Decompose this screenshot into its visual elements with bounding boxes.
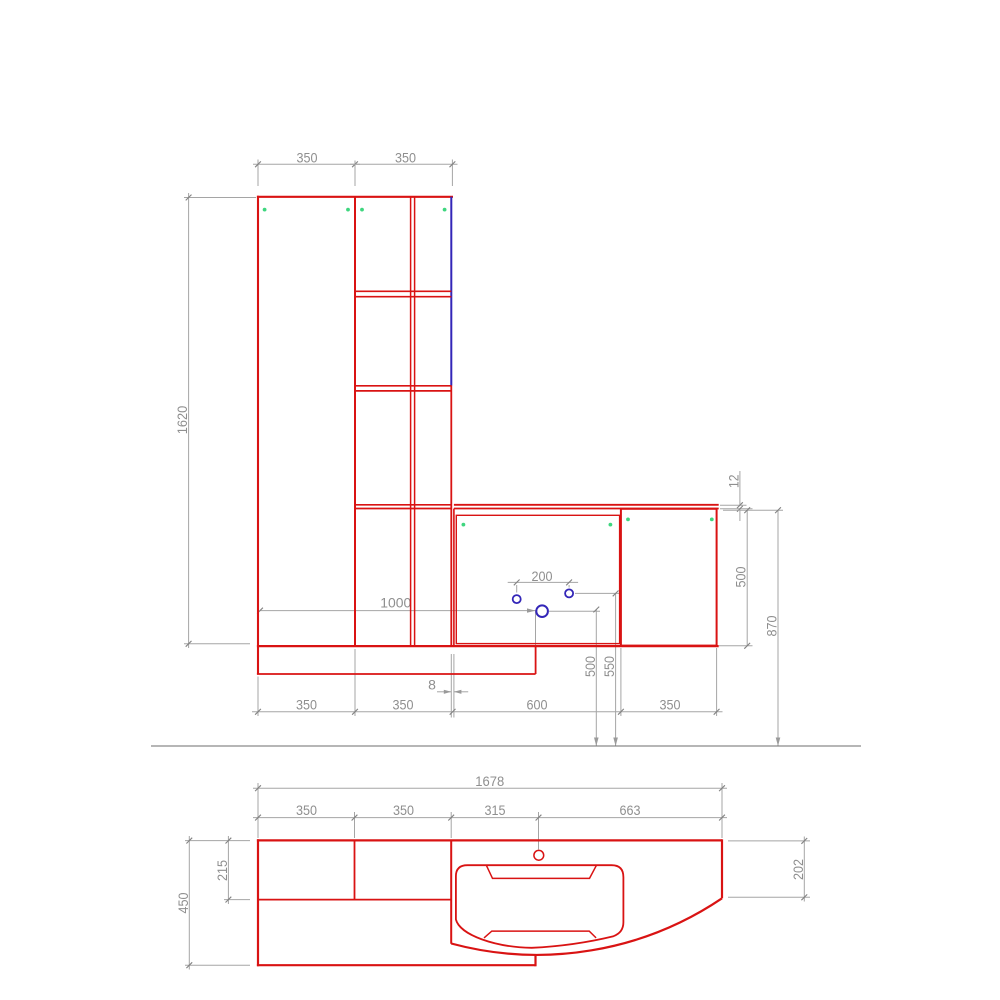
svg-text:350: 350 (393, 696, 414, 712)
svg-text:350: 350 (393, 802, 414, 818)
svg-text:12: 12 (725, 474, 741, 488)
svg-text:1000: 1000 (380, 595, 411, 611)
svg-text:500: 500 (582, 656, 598, 677)
svg-text:8: 8 (428, 676, 436, 692)
svg-text:350: 350 (296, 696, 317, 712)
svg-text:215: 215 (214, 860, 230, 881)
svg-text:500: 500 (733, 566, 749, 587)
svg-text:870: 870 (764, 615, 780, 636)
svg-text:350: 350 (660, 696, 681, 712)
svg-text:202: 202 (790, 859, 806, 880)
svg-text:550: 550 (601, 656, 617, 677)
svg-text:200: 200 (532, 568, 553, 584)
svg-text:350: 350 (395, 149, 416, 165)
svg-text:450: 450 (175, 892, 191, 913)
svg-text:1620: 1620 (174, 406, 190, 435)
svg-text:663: 663 (620, 802, 641, 818)
svg-text:315: 315 (485, 802, 506, 818)
svg-text:600: 600 (527, 696, 548, 712)
svg-text:350: 350 (296, 802, 317, 818)
svg-text:350: 350 (297, 149, 318, 165)
svg-text:1678: 1678 (475, 773, 504, 789)
